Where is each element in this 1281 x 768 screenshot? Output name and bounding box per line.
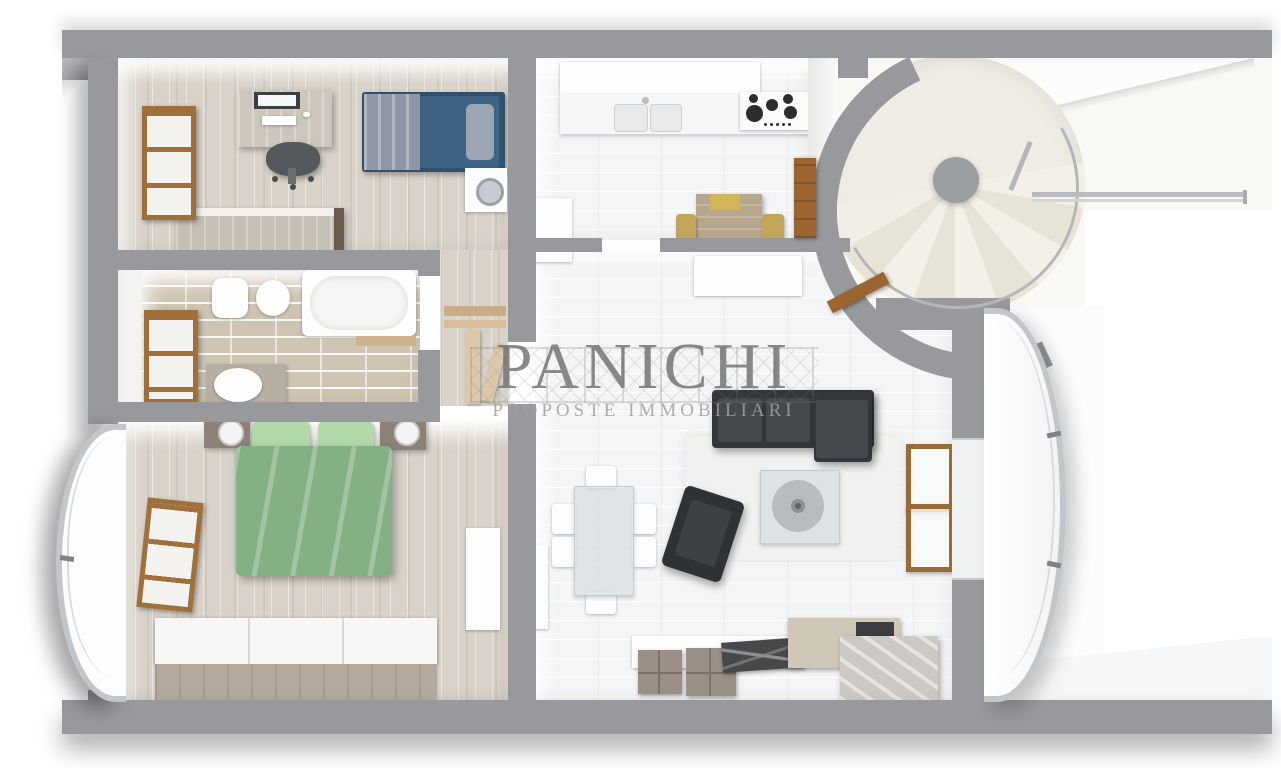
dining-chair xyxy=(552,537,576,567)
kitchen-stairs-door xyxy=(794,158,816,238)
stair-railing-straight-inner xyxy=(1032,199,1246,202)
office-chair-wheel xyxy=(272,176,278,182)
armchair-cushion xyxy=(674,499,732,567)
office-chair-column xyxy=(288,168,296,184)
kitchen-sink-left xyxy=(614,104,648,132)
single-bed-blanket xyxy=(364,94,420,170)
double-bed-duvet xyxy=(236,446,392,576)
wall-bathroom-right-a xyxy=(418,250,440,276)
bedroom-wardrobe-front xyxy=(155,664,437,702)
wall-bottom xyxy=(62,700,1272,734)
stair-railing-post xyxy=(1243,190,1247,204)
gas-hob xyxy=(740,92,810,130)
balcony-right-railing-inner xyxy=(995,320,1055,678)
hob-burner xyxy=(746,105,763,122)
kitchen-sink-right xyxy=(650,104,682,132)
watermark-title: PANICHI xyxy=(470,334,818,400)
coffee-table-knob xyxy=(795,503,801,509)
kitchen-divider-cabinet xyxy=(694,256,802,296)
wall-divider-lower xyxy=(508,404,536,702)
bedroom-window xyxy=(136,497,203,612)
office-chair-wheel xyxy=(290,184,296,190)
balcony-left-railing-tie xyxy=(60,555,75,562)
kitchen-refrigerator xyxy=(532,198,572,262)
nightstand-left-lamp xyxy=(218,420,244,446)
wall-divider-upper xyxy=(508,58,536,342)
hob-burner xyxy=(784,106,797,119)
wall-top xyxy=(62,30,1272,58)
dining-table xyxy=(574,486,634,596)
stair-railing-straight xyxy=(1032,192,1246,197)
hob-knobs xyxy=(764,123,767,126)
office-chair-wheel xyxy=(308,176,314,182)
bidet xyxy=(256,280,290,316)
balcony-left-railing-inner xyxy=(67,436,116,678)
vanity-sink xyxy=(214,368,262,402)
wall-bathroom-top xyxy=(118,250,440,270)
dining-chair xyxy=(632,537,656,567)
studio-window xyxy=(142,106,196,220)
bedroom-wardrobe-top xyxy=(155,618,437,664)
toilet xyxy=(212,278,248,318)
living-open-window-frame xyxy=(906,504,954,572)
bedroom-tall-cabinet xyxy=(466,528,500,630)
bathtub-basin xyxy=(310,276,408,330)
single-bed-pillow xyxy=(466,104,494,160)
dining-chair xyxy=(632,504,656,534)
living-open-window-frame xyxy=(906,444,954,512)
desk-monitor-screen xyxy=(258,95,296,106)
dining-chair xyxy=(586,466,616,488)
kitchen-faucet xyxy=(642,97,649,104)
wall-bathroom-bottom xyxy=(118,402,440,422)
studio-wardrobe-top xyxy=(176,208,344,216)
hallway-shelf xyxy=(444,320,506,328)
nightstand-right-lamp xyxy=(394,420,420,446)
floor-plan: PANICHI PROPOSTE IMMOBILIARI xyxy=(0,0,1281,768)
kitchen-upper-cabinets xyxy=(560,62,760,94)
living-right-window-sill xyxy=(952,438,984,580)
wall-kitchen-living-a xyxy=(536,238,602,252)
washing-machine-door xyxy=(476,178,504,206)
wall-left-upper xyxy=(88,58,118,424)
kitchen-table-tray xyxy=(710,194,740,210)
decor-box-set xyxy=(638,650,682,694)
bathroom-window xyxy=(144,310,198,404)
wall-bathroom-right-b xyxy=(418,350,440,422)
wall-stair-top-stub xyxy=(838,50,868,78)
decor-marble-cube xyxy=(840,636,938,700)
bathroom-wall-face xyxy=(118,268,142,405)
hob-burner xyxy=(766,99,778,111)
watermark-subtitle: PROPOSTE IMMOBILIARI xyxy=(470,400,818,422)
dining-chair xyxy=(552,504,576,534)
hob-burner xyxy=(783,94,793,104)
hob-burner xyxy=(749,94,758,103)
desk-mouse xyxy=(303,112,310,117)
desk-keyboard xyxy=(262,116,296,125)
balcony-left-railing xyxy=(56,424,126,702)
sofa-cushion xyxy=(816,400,868,458)
hallway-shelf xyxy=(444,306,506,316)
bathtub-shelf xyxy=(356,336,416,346)
